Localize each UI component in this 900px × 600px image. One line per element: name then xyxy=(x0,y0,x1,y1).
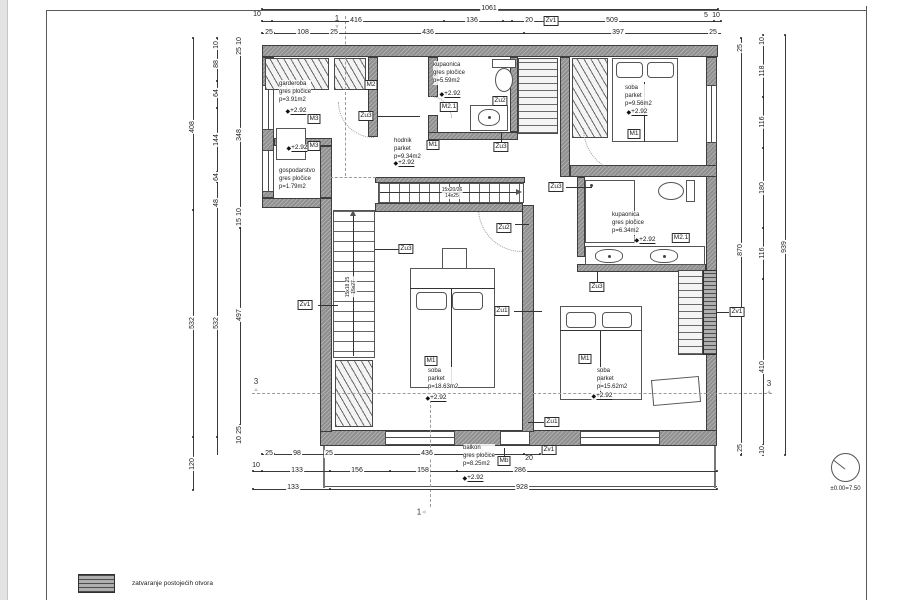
section-number: 1 xyxy=(335,14,339,23)
sheet-frame-right xyxy=(866,6,867,600)
dimension-value: 25 xyxy=(329,29,339,37)
wall-bath2-left xyxy=(577,177,585,257)
section-number: 3 xyxy=(254,377,258,386)
wall-bedroom1-bottom xyxy=(570,165,717,177)
level-value: +2.92 xyxy=(631,108,647,116)
plan-tag-m1: M1 xyxy=(424,356,437,366)
room-label-line: gres pločice xyxy=(433,69,465,77)
dimension-value: 348 xyxy=(236,128,244,142)
stair-note: 15x18.2515x27 xyxy=(345,277,357,298)
dimension-tick xyxy=(740,37,742,39)
section-marker-3: 3▵ xyxy=(767,379,771,395)
window-bottom-1 xyxy=(385,431,455,445)
dimension-tick xyxy=(443,20,445,22)
window-bottom-2 xyxy=(580,431,660,445)
dimension-value: 118 xyxy=(759,64,767,77)
dimension-value: 10 xyxy=(252,11,262,19)
leader-zu1-2 xyxy=(528,422,544,423)
room-label-line: soba xyxy=(428,367,458,375)
dimension-tick xyxy=(389,470,391,472)
dimension-tick xyxy=(762,96,764,98)
dimension-value: 156 xyxy=(350,467,364,475)
dimension-value: 116 xyxy=(759,246,767,259)
level-symbol: ±0.00=7.50 xyxy=(831,453,860,482)
vanity1-drain xyxy=(488,116,491,119)
dimension-tick xyxy=(762,147,764,149)
dimension-line xyxy=(240,38,241,440)
plan-tag-mb: Mb xyxy=(497,456,510,466)
dimension-value: 509 xyxy=(605,17,619,25)
window-right-1 xyxy=(706,85,717,143)
dimension-value: 25 xyxy=(324,450,334,458)
plan-tag-m2: M2 xyxy=(364,80,377,90)
wall-bath1-right xyxy=(510,57,518,132)
level-symbol-circle xyxy=(831,453,860,482)
section-arrow-icon: ▿ xyxy=(335,23,338,30)
dimension-line xyxy=(217,38,218,455)
section-number: 3 xyxy=(767,379,771,388)
legend: zatvaranje postojećih otvora xyxy=(78,574,213,593)
bed-bedroom3-pillow-1 xyxy=(566,312,596,328)
dimension-value: 408 xyxy=(189,120,197,134)
dimension-tick xyxy=(239,227,241,229)
dimension-value: 10 xyxy=(759,36,767,46)
dimension-value: 436 xyxy=(421,29,435,37)
toilet2-bowl xyxy=(658,182,684,200)
vanity2-drain-2 xyxy=(663,255,666,258)
plan-tag-zu1: Zu1 xyxy=(544,417,559,427)
section-number: 1 xyxy=(417,508,421,517)
section-marker-1: 1◃ xyxy=(417,508,425,517)
dimension-value: 25 xyxy=(708,29,718,37)
plan-tag-zv1: Zv1 xyxy=(544,16,559,26)
dimension-value: 397 xyxy=(611,29,625,37)
dimension-tick xyxy=(716,488,718,490)
closet-garderoba-2 xyxy=(334,58,366,90)
room-label-line: p=18.63m2 xyxy=(428,383,458,391)
section-marker-3: 3▵ xyxy=(254,377,258,393)
dimension-value: 416 xyxy=(349,17,363,25)
drawing-canvas: zatvaranje postojećih otvora ±0.00=7.50 … xyxy=(0,0,900,600)
sheet-frame-top xyxy=(46,10,866,11)
plan-tag-zu2: Zu2 xyxy=(496,223,511,233)
dimension-value: 10 xyxy=(236,207,244,217)
room-label-line: parket xyxy=(625,92,652,100)
dimension-value: 116 xyxy=(759,115,767,128)
room-label-line: gres pločice xyxy=(612,219,644,227)
room-label-line: kupaonica xyxy=(433,61,465,69)
dimension-value: 98 xyxy=(292,450,302,458)
level-mark: ◆+2.92 xyxy=(634,236,655,244)
wall-center xyxy=(522,205,534,432)
section-arrow-icon: ◃ xyxy=(422,509,425,516)
room-label-balkon: balkongres pločicep=8.25m2 xyxy=(463,444,495,468)
dimension-value: 15 xyxy=(236,217,244,227)
window-left-1 xyxy=(262,85,274,130)
balcony-door xyxy=(500,431,530,445)
legend-label: zatvaranje postojećih otvora xyxy=(132,580,213,587)
room-label-line: soba xyxy=(597,367,627,375)
dimension-line xyxy=(253,471,717,472)
dimension-value: 10 xyxy=(236,435,244,445)
dimension-tick xyxy=(216,37,218,39)
room-label-hodnik: hodnikparketp=9.34m2 xyxy=(394,137,421,161)
dimension-value: 286 xyxy=(513,467,527,475)
dimension-line xyxy=(763,35,764,455)
wall-bath1-bottom xyxy=(428,132,518,140)
desk-bedroom3 xyxy=(651,376,701,406)
dimension-value: 48 xyxy=(213,198,221,208)
plan-tag-zu1: Zu1 xyxy=(494,306,509,316)
room-label-line: gres pločice xyxy=(463,452,495,460)
room-label-line: p=3.91m2 xyxy=(279,96,311,104)
room-label-line: p=9.56m2 xyxy=(625,100,652,108)
plan-tag-zu3: Zu3 xyxy=(398,244,413,254)
level-value: +2.92 xyxy=(291,144,307,152)
vanity2-drain-1 xyxy=(608,255,611,258)
dimension-value: 133 xyxy=(290,467,304,475)
dimension-value: 410 xyxy=(759,360,767,374)
dimension-tick xyxy=(502,20,504,22)
level-mark: ◆+2.92 xyxy=(393,159,414,167)
room-label-soba: sobaparketp=9.56m2 xyxy=(625,84,652,108)
level-mark: ◆+2.92 xyxy=(591,392,612,400)
dimension-line xyxy=(193,38,194,490)
room-label-gospodarstvo: gospodarstvogres pločicep=1.79m2 xyxy=(279,167,315,191)
room-label-line: parket xyxy=(597,375,627,383)
level-mark: ◆+2.92 xyxy=(285,107,306,115)
room-label-line: parket xyxy=(428,375,458,383)
level-value: +2.92 xyxy=(639,236,655,244)
room-label-line: gres pločice xyxy=(279,88,311,96)
room-label-garderoba: garderobagres pločicep=3.91m2 xyxy=(279,80,311,104)
bed-bedroom2-pillow-2 xyxy=(452,292,483,310)
dimension-value: 158 xyxy=(416,467,430,475)
leader-zu2-2 xyxy=(515,224,529,225)
plan-tag-m1: M1 xyxy=(426,140,439,150)
dimension-line xyxy=(253,489,717,490)
dimension-tick xyxy=(261,32,263,34)
plan-tag-m3: M3 xyxy=(307,141,320,151)
leader-zv1-right xyxy=(717,312,729,313)
plan-tag-zu2: Zu2 xyxy=(492,96,507,106)
level-mark: ◆+2.92 xyxy=(439,90,460,98)
wall-left-lower xyxy=(320,198,332,432)
toilet1-tank xyxy=(492,59,516,68)
plan-tag-zu3: Zu3 xyxy=(358,111,373,121)
level-value: +2.92 xyxy=(444,90,460,98)
dimension-tick xyxy=(216,436,218,438)
section-marker-1: 1▿ xyxy=(335,14,339,30)
balcony-side-right xyxy=(714,446,716,488)
dimension-value: 1061 xyxy=(480,5,498,13)
level-value: +2.92 xyxy=(467,474,483,482)
dimension-tick xyxy=(216,80,218,82)
dimension-value: 144 xyxy=(213,133,221,147)
bed-bedroom1-pillow-2 xyxy=(647,62,674,78)
dimension-tick xyxy=(192,37,194,39)
dimension-tick xyxy=(271,20,273,22)
dimension-line xyxy=(262,454,540,455)
dimension-value: 532 xyxy=(189,316,197,330)
stair-arrow-head-v xyxy=(350,210,356,216)
level-value: +2.92 xyxy=(398,159,414,167)
legend-swatch-closed-opening xyxy=(78,574,115,593)
dimension-tick xyxy=(329,470,331,472)
room-label-line: gospodarstvo xyxy=(279,167,315,175)
dimension-tick xyxy=(261,470,263,472)
dimension-tick xyxy=(329,488,331,490)
level-symbol-label: ±0.00=7.50 xyxy=(830,486,860,492)
dimension-value: 939 xyxy=(781,240,789,254)
dimension-tick xyxy=(192,489,194,491)
dimension-value: 10 xyxy=(251,462,261,470)
dimension-value: 436 xyxy=(420,450,434,458)
plan-tag-m2-1: M2.1 xyxy=(440,102,458,112)
dimension-line xyxy=(262,21,721,22)
dimension-tick xyxy=(252,470,254,472)
dimension-value: 64 xyxy=(213,172,221,182)
dimension-tick xyxy=(762,227,764,229)
dimension-value: 497 xyxy=(236,308,244,322)
room-label-line: gres pločice xyxy=(279,175,315,183)
closet-hall xyxy=(518,58,558,134)
wall-top xyxy=(262,45,718,57)
dimension-value: 120 xyxy=(189,457,197,471)
plan-tag-m2-1: M2.1 xyxy=(672,233,690,243)
dimension-value: 20 xyxy=(524,455,534,463)
level-value: +2.92 xyxy=(430,394,446,402)
room-label-line: kupaonica xyxy=(612,211,644,219)
room-label-kupaonica: kupaonicagres pločicep=5.59m2 xyxy=(433,61,465,85)
dimension-value: 180 xyxy=(759,181,767,195)
dimension-value: 25 xyxy=(236,425,244,435)
room-label-kupaonica: kupaonicagres pločicep=6.34m2 xyxy=(612,211,644,235)
dimension-value: 928 xyxy=(515,484,529,492)
dimension-value: 25 xyxy=(737,43,745,53)
room-label-line: balkon xyxy=(463,444,495,452)
section-arrow-icon: ▵ xyxy=(767,388,770,395)
section-arrow-icon: ▵ xyxy=(254,386,257,393)
dimension-value: 532 xyxy=(213,316,221,330)
room-label-line: p=6.34m2 xyxy=(612,227,644,235)
dimension-tick xyxy=(511,20,513,22)
closet-bedroom1 xyxy=(572,58,608,138)
level-value: +2.92 xyxy=(596,392,612,400)
leader-zu3-bedroom2 xyxy=(375,249,399,250)
dimension-value: 10 xyxy=(711,12,721,20)
dimension-tick xyxy=(713,20,715,22)
dimension-value: 5 xyxy=(703,12,709,20)
toilet1-bowl xyxy=(495,68,513,92)
dimension-tick xyxy=(762,278,764,280)
dimension-tick xyxy=(784,454,786,456)
dimension-value: 20 xyxy=(524,17,534,25)
room-label-line: hodnik xyxy=(394,137,421,145)
room-label-line: p=5.59m2 xyxy=(433,77,465,85)
room-label-line: parket xyxy=(394,145,421,153)
room-label-line: soba xyxy=(625,84,652,92)
plan-tag-zu3: Zu3 xyxy=(493,142,508,152)
dimension-tick xyxy=(192,209,194,211)
leader-zu1-1 xyxy=(514,311,542,312)
stair-note-line: 15x27 xyxy=(351,277,357,298)
plan-tag-zv1: Zv1 xyxy=(730,307,745,317)
dimension-tick xyxy=(192,436,194,438)
bed-bedroom3-head xyxy=(560,330,642,331)
viewer-edge-strip xyxy=(0,0,8,600)
section-line-3 xyxy=(252,393,772,394)
plan-tag-zu3: Zu3 xyxy=(548,182,563,192)
wall-bedroom1-left xyxy=(560,57,570,177)
dimension-value: 88 xyxy=(213,59,221,69)
leader-zu3-shower xyxy=(566,187,592,188)
dimension-tick xyxy=(716,470,718,472)
dimension-value: 25 xyxy=(264,29,274,37)
plan-tag-m1: M1 xyxy=(627,129,640,139)
stair-note-line: 14x25 xyxy=(442,193,463,199)
stair-arrow-head-h xyxy=(516,189,522,195)
dimension-value: 10 xyxy=(759,445,767,455)
dimension-value: 10 xyxy=(236,36,244,46)
plan-tag-zv1: Zv1 xyxy=(298,300,313,310)
leader-zu3-bath1 xyxy=(501,132,502,142)
level-mark: ◆+2.92 xyxy=(462,474,483,482)
dimension-tick xyxy=(784,34,786,36)
window-left-2 xyxy=(262,150,274,192)
dimension-tick xyxy=(261,453,263,455)
dimension-tick xyxy=(261,20,263,22)
bed-bedroom2-head xyxy=(410,288,495,289)
wall-garderoba-vertical xyxy=(320,146,332,198)
level-mark: ◆+2.92 xyxy=(425,394,446,402)
level-mark: ◆+2.92 xyxy=(286,144,307,152)
stair-note: 15x20/2614x25 xyxy=(442,187,463,199)
stair-boundary-dash xyxy=(330,177,376,178)
dimension-tick xyxy=(261,8,263,10)
plan-tag-m1: M1 xyxy=(578,354,591,364)
dimension-tick xyxy=(720,20,722,22)
leader-zv1-stair xyxy=(318,305,338,306)
room-label-soba: sobaparketp=15.62m2 xyxy=(597,367,627,391)
dimension-value: 25 xyxy=(264,450,274,458)
sheet-frame-left xyxy=(46,10,47,600)
dimension-value: 25 xyxy=(737,443,745,453)
room-label-line: p=15.62m2 xyxy=(597,383,627,391)
closed-opening-right-wall xyxy=(703,270,717,355)
bed-bedroom1-pillow-1 xyxy=(616,62,643,78)
dimension-tick xyxy=(717,8,719,10)
dimension-tick xyxy=(456,470,458,472)
dimension-value: 10 xyxy=(213,40,221,50)
level-value: +2.92 xyxy=(290,107,306,115)
bed-bedroom2-pillow-1 xyxy=(416,292,447,310)
wardrobe-bedroom3 xyxy=(678,270,703,355)
plan-tag-zv1: Zv1 xyxy=(542,445,557,455)
room-label-line: p=8.25m2 xyxy=(463,460,495,468)
dimension-value: 870 xyxy=(737,243,745,257)
dimension-tick xyxy=(216,107,218,109)
dimension-value: 64 xyxy=(213,88,221,98)
room-label-line: p=1.79m2 xyxy=(279,183,315,191)
level-mark: ◆+2.92 xyxy=(626,108,647,116)
dimension-tick xyxy=(740,454,742,456)
toilet2-tank xyxy=(686,180,695,202)
room-label-line: garderoba xyxy=(279,80,311,88)
dimension-value: 133 xyxy=(286,484,300,492)
bed-bedroom3-pillow-2 xyxy=(602,312,632,328)
plan-tag-zu3: Zu3 xyxy=(589,282,604,292)
leader-zu3-hall xyxy=(378,116,420,117)
dimension-value: 25 xyxy=(236,46,244,56)
dimension-value: 108 xyxy=(296,29,310,37)
dimension-value: 136 xyxy=(465,17,479,25)
dimension-tick xyxy=(523,32,525,34)
dimension-tick xyxy=(252,488,254,490)
plan-tag-m3: M3 xyxy=(307,114,320,124)
section-line-1-top xyxy=(345,16,346,176)
room-label-soba: sobaparketp=18.63m2 xyxy=(428,367,458,391)
